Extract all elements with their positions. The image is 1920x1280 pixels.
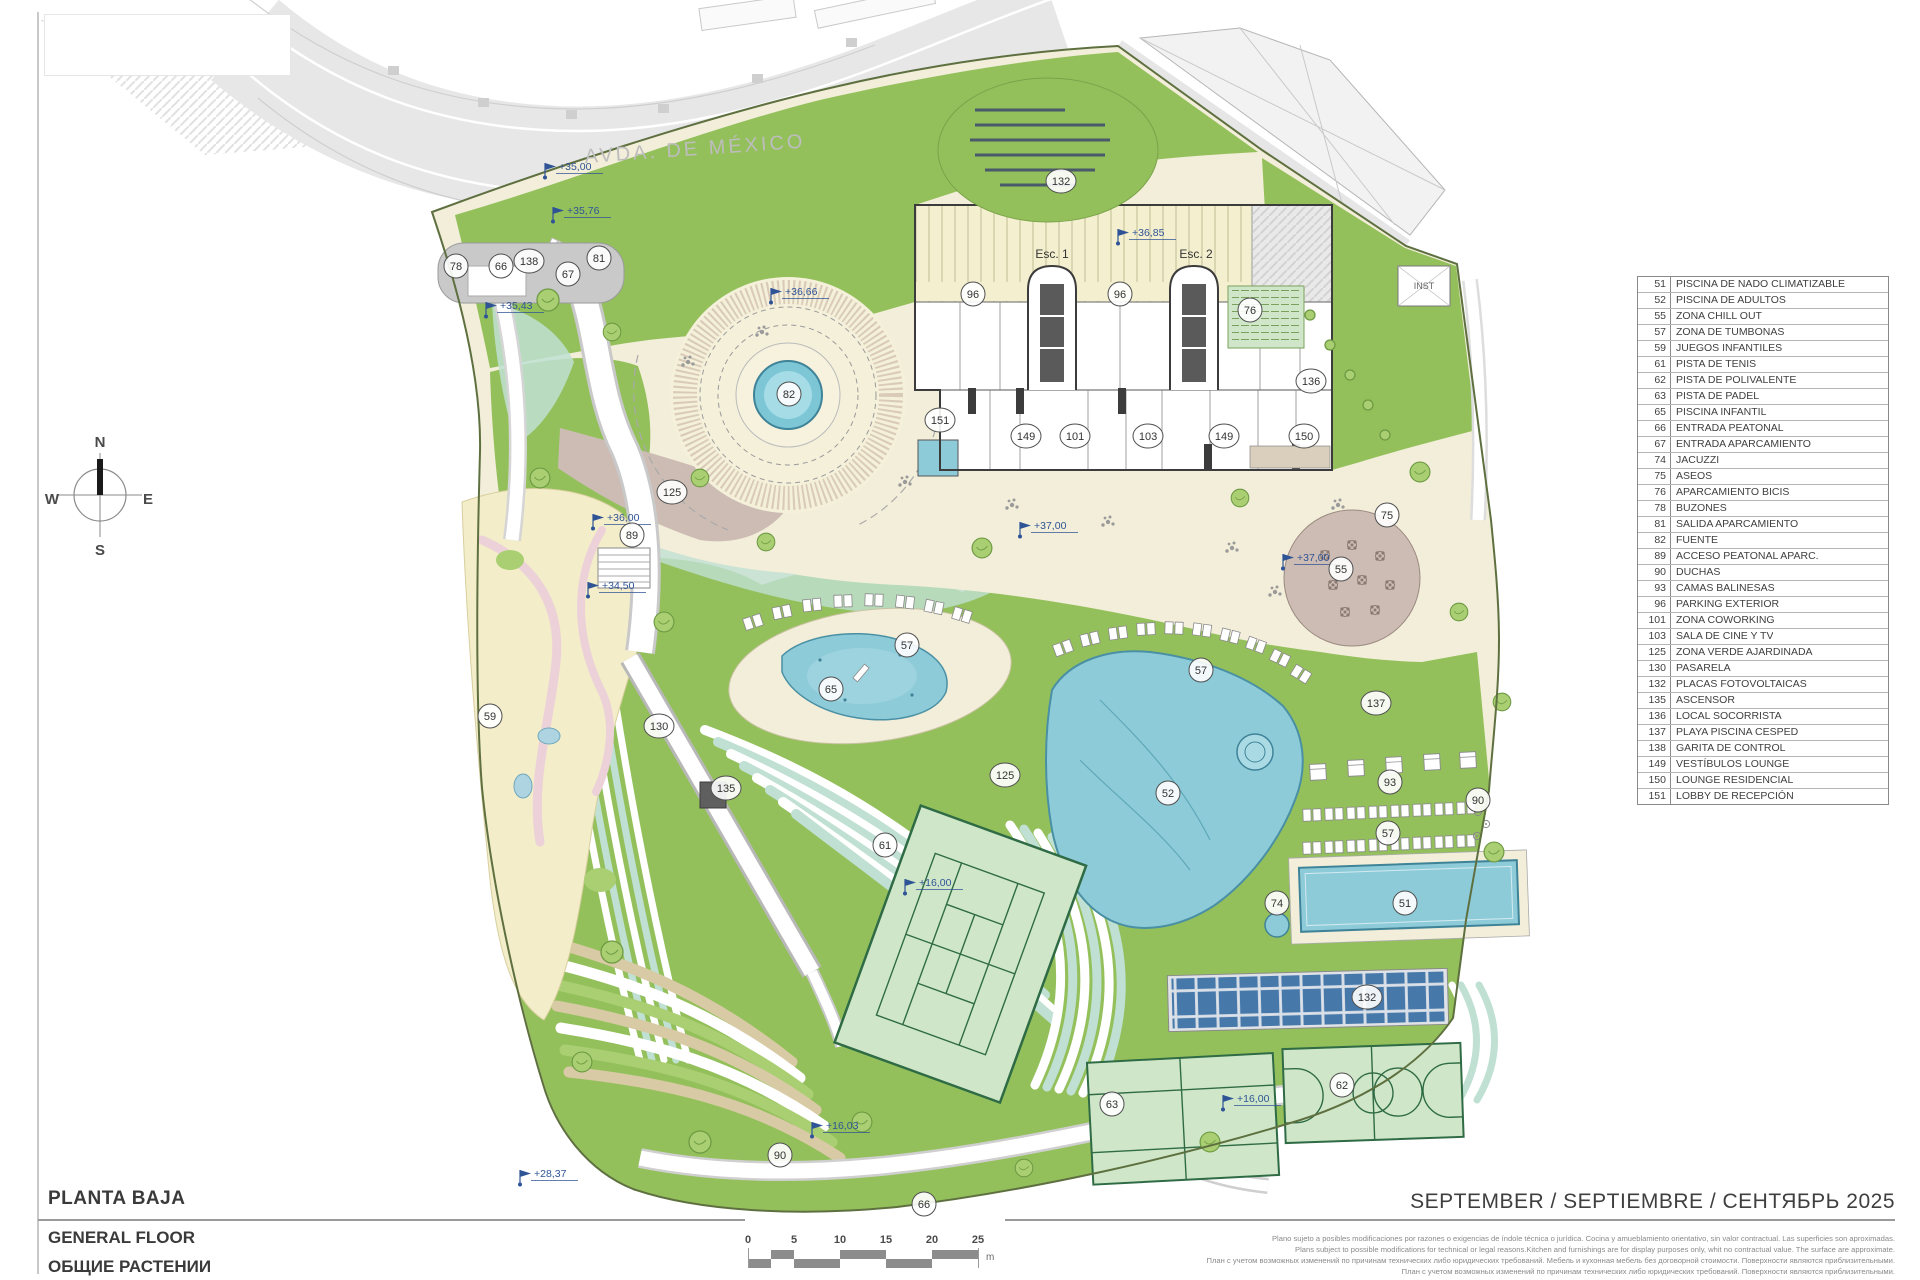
site-plan-sheet: INST Esc. 1 Esc. 2: [0, 0, 1920, 1280]
legend-num: 57: [1638, 325, 1671, 340]
legend-row-75: 75ASEOS: [1638, 469, 1888, 485]
scale-tick: 15: [876, 1234, 896, 1246]
bike-parking: [1228, 286, 1304, 348]
legend-num: 74: [1638, 453, 1671, 468]
multisport-court: [1282, 1043, 1463, 1143]
legend-num: 90: [1638, 565, 1671, 580]
svg-text:135: 135: [717, 783, 735, 795]
plan-marker-137: 137: [1361, 691, 1391, 715]
legend-num: 67: [1638, 437, 1671, 452]
plan-marker-55: 55: [1329, 557, 1353, 581]
legend-row-82: 82FUENTE: [1638, 533, 1888, 549]
plan-marker-149: 149: [1209, 424, 1239, 448]
legend-label: ZONA VERDE AJARDINADA: [1671, 645, 1813, 660]
svg-text:+35,76: +35,76: [567, 205, 600, 217]
legend-row-125: 125ZONA VERDE AJARDINADA: [1638, 645, 1888, 661]
plan-marker-67: 67: [556, 262, 580, 286]
legend-label: LOCAL SOCORRISTA: [1671, 709, 1782, 724]
legend-row-62: 62PISTA DE POLIVALENTE: [1638, 373, 1888, 389]
legend-row-59: 59JUEGOS INFANTILES: [1638, 341, 1888, 357]
svg-text:96: 96: [967, 289, 979, 301]
disclaimer-en: Plans subject to possible modifications …: [975, 1244, 1895, 1255]
disclaimer-ru-2: План с учетом возможных изменений по при…: [975, 1266, 1895, 1277]
legend-label: ASEOS: [1671, 469, 1712, 484]
stair-core-1: [1028, 266, 1076, 390]
date-line: SEPTEMBER / SEPTIEMBRE / СЕНТЯБРЬ 2025: [1410, 1190, 1895, 1214]
legend-num: 103: [1638, 629, 1671, 644]
plan-marker-90: 90: [768, 1143, 792, 1167]
svg-text:52: 52: [1162, 788, 1174, 800]
legend-label: BUZONES: [1671, 501, 1727, 516]
legend-row-93: 93CAMAS BALINESAS: [1638, 581, 1888, 597]
plan-marker-96: 96: [1108, 282, 1132, 306]
legend-label: SALA DE CINE Y TV: [1671, 629, 1773, 644]
svg-text:96: 96: [1114, 289, 1126, 301]
svg-text:90: 90: [1472, 795, 1484, 807]
svg-text:67: 67: [562, 269, 574, 281]
legend-row-101: 101ZONA COWORKING: [1638, 613, 1888, 629]
svg-text:151: 151: [931, 415, 949, 427]
svg-text:130: 130: [650, 721, 668, 733]
legend-num: 149: [1638, 757, 1671, 772]
legend-label: FUENTE: [1671, 533, 1718, 548]
legend-num: 93: [1638, 581, 1671, 596]
corner-box: [44, 14, 291, 76]
legend-row-52: 52PISCINA DE ADULTOS: [1638, 293, 1888, 309]
legend-label: JUEGOS INFANTILES: [1671, 341, 1782, 356]
svg-text:150: 150: [1295, 431, 1313, 443]
legend-label: PISCINA INFANTIL: [1671, 405, 1766, 420]
plan-marker-150: 150: [1289, 424, 1319, 448]
pond: [538, 728, 560, 744]
plan-marker-125: 125: [990, 763, 1020, 787]
plan-marker-82: 82: [777, 382, 801, 406]
plan-marker-65: 65: [819, 677, 843, 701]
svg-text:138: 138: [520, 256, 538, 268]
scale-tick: 10: [830, 1234, 850, 1246]
legend-label: PARKING EXTERIOR: [1671, 597, 1779, 612]
plan-marker-149: 149: [1011, 424, 1041, 448]
svg-text:59: 59: [484, 711, 496, 723]
legend-num: 76: [1638, 485, 1671, 500]
legend-label: ENTRADA PEATONAL: [1671, 421, 1784, 436]
legend-label: SALIDA APARCAMIENTO: [1671, 517, 1798, 532]
scale-block: [840, 1250, 886, 1259]
svg-text:75: 75: [1381, 510, 1393, 522]
svg-text:66: 66: [495, 261, 507, 273]
legend-label: DUCHAS: [1671, 565, 1720, 580]
compass-rose: N E S W: [45, 434, 153, 559]
compass-w: W: [45, 491, 60, 508]
legend-row-103: 103SALA DE CINE Y TV: [1638, 629, 1888, 645]
svg-text:62: 62: [1336, 1080, 1348, 1092]
legend-table: 51PISCINA DE NADO CLIMATIZABLE52PISCINA …: [1637, 276, 1889, 805]
legend-num: 125: [1638, 645, 1671, 660]
svg-text:+37,00: +37,00: [1034, 520, 1067, 532]
legend-num: 82: [1638, 533, 1671, 548]
legend-label: PISTA DE TENIS: [1671, 357, 1756, 372]
plan-marker-57: 57: [1189, 658, 1213, 682]
legend-num: 75: [1638, 469, 1671, 484]
plan-marker-93: 93: [1378, 770, 1402, 794]
legend-num: 65: [1638, 405, 1671, 420]
legend-num: 96: [1638, 597, 1671, 612]
compass-e: E: [143, 491, 153, 508]
plan-marker-75: 75: [1375, 503, 1399, 527]
legend-label: PISTA DE POLIVALENTE: [1671, 373, 1796, 388]
esc2-label: Esc. 2: [1179, 247, 1213, 261]
legend-row-89: 89ACCESO PEATONAL APARC.: [1638, 549, 1888, 565]
padel-court: [1087, 1053, 1279, 1185]
legend-num: 137: [1638, 725, 1671, 740]
legend-row-150: 150LOUNGE RESIDENCIAL: [1638, 773, 1888, 789]
svg-text:+16,00: +16,00: [919, 877, 952, 889]
north-needle: [97, 459, 103, 495]
scale-block: [794, 1259, 840, 1268]
legend-label: JACUZZI: [1671, 453, 1719, 468]
svg-text:74: 74: [1271, 898, 1283, 910]
legend-row-149: 149VESTÍBULOS LOUNGE: [1638, 757, 1888, 773]
disclaimer-ru-1: План с учетом возможных изменений по при…: [975, 1255, 1895, 1266]
legend-row-63: 63PISTA DE PADEL: [1638, 389, 1888, 405]
plan-marker-61: 61: [873, 833, 897, 857]
inst-label: INST: [1414, 281, 1435, 291]
scale-tick: 25: [968, 1234, 988, 1246]
legend-label: ZONA CHILL OUT: [1671, 309, 1762, 324]
legend-label: LOUNGE RESIDENCIAL: [1671, 773, 1793, 788]
scale-tick: 5: [784, 1234, 804, 1246]
legend-row-65: 65PISCINA INFANTIL: [1638, 405, 1888, 421]
inst-building: INST: [1398, 266, 1450, 306]
plan-marker-96: 96: [961, 282, 985, 306]
svg-text:125: 125: [996, 770, 1014, 782]
scale-block: [748, 1259, 771, 1268]
scale-tick: 20: [922, 1234, 942, 1246]
svg-text:137: 137: [1367, 698, 1385, 710]
legend-row-57: 57ZONA DE TUMBONAS: [1638, 325, 1888, 341]
plan-marker-135: 135: [711, 776, 741, 800]
scale-unit: m: [986, 1252, 994, 1263]
plan-marker-90: 90: [1466, 788, 1490, 812]
legend-num: 150: [1638, 773, 1671, 788]
legend-row-135: 135ASCENSOR: [1638, 693, 1888, 709]
plan-marker-52: 52: [1156, 781, 1180, 805]
legend-label: ASCENSOR: [1671, 693, 1735, 708]
scale-block: [771, 1250, 794, 1259]
legend-row-130: 130PASARELA: [1638, 661, 1888, 677]
scale-tick: 0: [738, 1234, 758, 1246]
svg-text:81: 81: [593, 253, 605, 265]
plan-marker-57: 57: [1376, 821, 1400, 845]
legend-row-151: 151LOBBY DE RECEPCIÓN: [1638, 789, 1888, 804]
scale-end-tick: [978, 1248, 979, 1268]
legend-num: 52: [1638, 293, 1671, 308]
plan-marker-81: 81: [587, 246, 611, 270]
plan-marker-151: 151: [925, 408, 955, 432]
legend-row-137: 137PLAYA PISCINA CESPED: [1638, 725, 1888, 741]
legend-label: ENTRADA APARCAMIENTO: [1671, 437, 1811, 452]
legend-label: APARCAMIENTO BICIS: [1671, 485, 1789, 500]
legend-label: ZONA DE TUMBONAS: [1671, 325, 1784, 340]
svg-text:57: 57: [1195, 665, 1207, 677]
legend-row-51: 51PISCINA DE NADO CLIMATIZABLE: [1638, 277, 1888, 293]
legend-label: GARITA DE CONTROL: [1671, 741, 1786, 756]
svg-text:51: 51: [1399, 898, 1411, 910]
plan-marker-74: 74: [1265, 891, 1289, 915]
legend-label: PLACAS FOTOVOLTAICAS: [1671, 677, 1807, 692]
legend-label: PISCINA DE NADO CLIMATIZABLE: [1671, 277, 1845, 292]
legend-label: CAMAS BALINESAS: [1671, 581, 1775, 596]
solar-panels: [1167, 968, 1448, 1031]
jacuzzi: [1265, 913, 1289, 937]
legend-num: 136: [1638, 709, 1671, 724]
svg-text:+35,43: +35,43: [500, 300, 533, 312]
legend-num: 78: [1638, 501, 1671, 516]
stair-core-2: [1170, 266, 1218, 390]
scale-block: [932, 1250, 978, 1259]
svg-text:+16,00: +16,00: [1237, 1093, 1270, 1105]
legend-label: ZONA COWORKING: [1671, 613, 1775, 628]
plan-marker-63: 63: [1100, 1092, 1124, 1116]
legend-row-96: 96PARKING EXTERIOR: [1638, 597, 1888, 613]
svg-text:93: 93: [1384, 777, 1396, 789]
svg-text:149: 149: [1215, 431, 1233, 443]
svg-text:55: 55: [1335, 564, 1347, 576]
svg-text:57: 57: [901, 640, 913, 652]
scale-bar: 0510152025m: [748, 1234, 1008, 1276]
disclaimer-es: Plano sujeto a posibles modificaciones p…: [975, 1233, 1895, 1244]
legend-row-90: 90DUCHAS: [1638, 565, 1888, 581]
svg-text:+37,00: +37,00: [1297, 552, 1330, 564]
plan-marker-66: 66: [912, 1192, 936, 1216]
legend-row-66: 66ENTRADA PEATONAL: [1638, 421, 1888, 437]
plan-title-en: GENERAL FLOOR: [48, 1228, 195, 1248]
legend-label: PLAYA PISCINA CESPED: [1671, 725, 1798, 740]
date-rule: [1005, 1219, 1895, 1221]
svg-text:61: 61: [879, 840, 891, 852]
legend-row-132: 132PLACAS FOTOVOLTAICAS: [1638, 677, 1888, 693]
legend-row-138: 138GARITA DE CONTROL: [1638, 741, 1888, 757]
svg-text:149: 149: [1017, 431, 1035, 443]
legend-num: 138: [1638, 741, 1671, 756]
plan-marker-62: 62: [1330, 1073, 1354, 1097]
legend-num: 151: [1638, 789, 1671, 804]
svg-text:+28,37: +28,37: [534, 1168, 567, 1180]
legend-row-55: 55ZONA CHILL OUT: [1638, 309, 1888, 325]
plan-marker-132: 132: [1046, 169, 1076, 193]
plan-marker-125: 125: [657, 480, 687, 504]
legend-num: 59: [1638, 341, 1671, 356]
plan-marker-59: 59: [478, 704, 502, 728]
chill-out-terrace: [1284, 510, 1420, 646]
legend-num: 51: [1638, 277, 1671, 292]
legend-row-136: 136LOCAL SOCORRISTA: [1638, 709, 1888, 725]
svg-text:+36,85: +36,85: [1132, 227, 1165, 239]
plan-marker-130: 130: [644, 714, 674, 738]
plan-marker-51: 51: [1393, 891, 1417, 915]
legend-label: VESTÍBULOS LOUNGE: [1671, 757, 1789, 772]
svg-text:90: 90: [774, 1150, 786, 1162]
svg-text:+16,03: +16,03: [826, 1120, 859, 1132]
legend-row-76: 76APARCAMIENTO BICIS: [1638, 485, 1888, 501]
legend-label: PISTA DE PADEL: [1671, 389, 1759, 404]
legend-num: 62: [1638, 373, 1671, 388]
svg-text:132: 132: [1358, 992, 1376, 1004]
plan-title-es: PLANTA BAJA: [48, 1188, 185, 1210]
legend-num: 101: [1638, 613, 1671, 628]
svg-text:125: 125: [663, 487, 681, 499]
svg-text:57: 57: [1382, 828, 1394, 840]
svg-text:+36,00: +36,00: [607, 512, 640, 524]
legend-row-78: 78BUZONES: [1638, 501, 1888, 517]
legend-num: 63: [1638, 389, 1671, 404]
legend-num: 81: [1638, 517, 1671, 532]
plan-marker-78: 78: [444, 254, 468, 278]
site-plan-drawing: INST Esc. 1 Esc. 2: [0, 0, 1920, 1280]
plan-marker-136: 136: [1296, 369, 1326, 393]
plan-marker-89: 89: [620, 523, 644, 547]
esc1-label: Esc. 1: [1035, 247, 1069, 261]
svg-text:65: 65: [825, 684, 837, 696]
legend-row-67: 67ENTRADA APARCAMIENTO: [1638, 437, 1888, 453]
pond: [514, 774, 532, 798]
pv-pergola: [938, 78, 1158, 222]
site-area: INST Esc. 1 Esc. 2: [432, 46, 1529, 1212]
plan-marker-101: 101: [1060, 424, 1090, 448]
compass-s: S: [95, 542, 105, 559]
svg-text:+34,50: +34,50: [602, 580, 635, 592]
legend-num: 66: [1638, 421, 1671, 436]
svg-text:76: 76: [1244, 305, 1256, 317]
legend-num: 132: [1638, 677, 1671, 692]
level-marker: +28,37: [518, 1168, 578, 1187]
legend-label: LOBBY DE RECEPCIÓN: [1671, 789, 1794, 804]
legend-row-81: 81SALIDA APARCAMIENTO: [1638, 517, 1888, 533]
plan-marker-138: 138: [514, 249, 544, 273]
legend-num: 61: [1638, 357, 1671, 372]
scale-end-tick: [748, 1248, 749, 1268]
legend-num: 89: [1638, 549, 1671, 564]
compass-n: N: [95, 434, 106, 451]
svg-text:78: 78: [450, 261, 462, 273]
disclaimer-text: Plano sujeto a posibles modificaciones p…: [975, 1233, 1895, 1277]
legend-label: ACCESO PEATONAL APARC.: [1671, 549, 1819, 564]
legend-row-61: 61PISTA DE TENIS: [1638, 357, 1888, 373]
legend-num: 135: [1638, 693, 1671, 708]
title-rule: [38, 1219, 745, 1221]
legend-row-74: 74JACUZZI: [1638, 453, 1888, 469]
svg-text:103: 103: [1139, 431, 1157, 443]
legend-label: PISCINA DE ADULTOS: [1671, 293, 1786, 308]
scale-block: [886, 1259, 932, 1268]
plan-marker-103: 103: [1133, 424, 1163, 448]
plan-title-ru: ОБЩИЕ РАСТЕНИИ: [48, 1257, 211, 1277]
svg-text:63: 63: [1106, 1099, 1118, 1111]
plan-marker-66: 66: [489, 254, 513, 278]
svg-text:+36,66: +36,66: [785, 286, 818, 298]
plan-marker-57: 57: [895, 633, 919, 657]
svg-text:101: 101: [1066, 431, 1084, 443]
sheet-frame-line: [37, 12, 39, 1274]
legend-num: 130: [1638, 661, 1671, 676]
legend-label: PASARELA: [1671, 661, 1731, 676]
plan-marker-132: 132: [1352, 985, 1382, 1009]
svg-text:136: 136: [1302, 376, 1320, 388]
svg-text:89: 89: [626, 530, 638, 542]
plan-marker-76: 76: [1238, 298, 1262, 322]
svg-text:+35,00: +35,00: [559, 161, 592, 173]
legend-num: 55: [1638, 309, 1671, 324]
svg-text:66: 66: [918, 1199, 930, 1211]
svg-text:82: 82: [783, 389, 795, 401]
svg-text:132: 132: [1052, 176, 1070, 188]
